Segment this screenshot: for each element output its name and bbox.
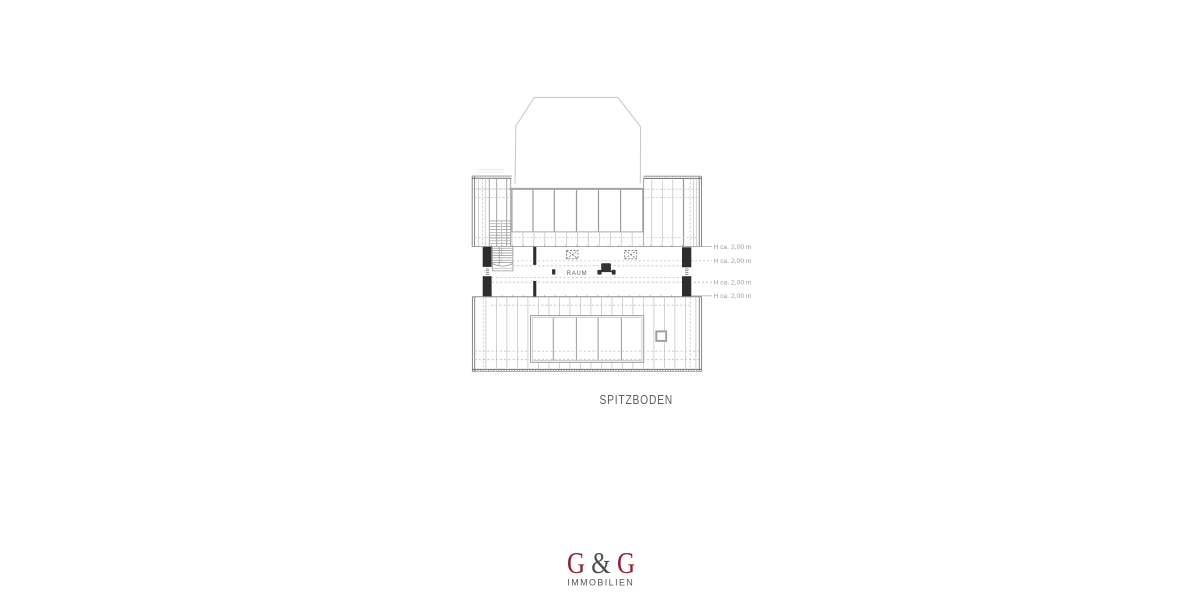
svg-text:IMMOBILIEN: IMMOBILIEN <box>567 578 634 588</box>
svg-text:H ca. 2,00 m: H ca. 2,00 m <box>714 244 752 251</box>
svg-text:G & G: G & G <box>567 545 635 580</box>
svg-text:H ca. 2,00 m: H ca. 2,00 m <box>714 279 752 286</box>
svg-text:SPITZBODEN: SPITZBODEN <box>600 392 674 407</box>
svg-text:RAUM: RAUM <box>567 270 588 277</box>
svg-text:H ca. 2,00 m: H ca. 2,00 m <box>714 258 752 265</box>
svg-text:H ca. 2,00 m: H ca. 2,00 m <box>714 293 752 300</box>
